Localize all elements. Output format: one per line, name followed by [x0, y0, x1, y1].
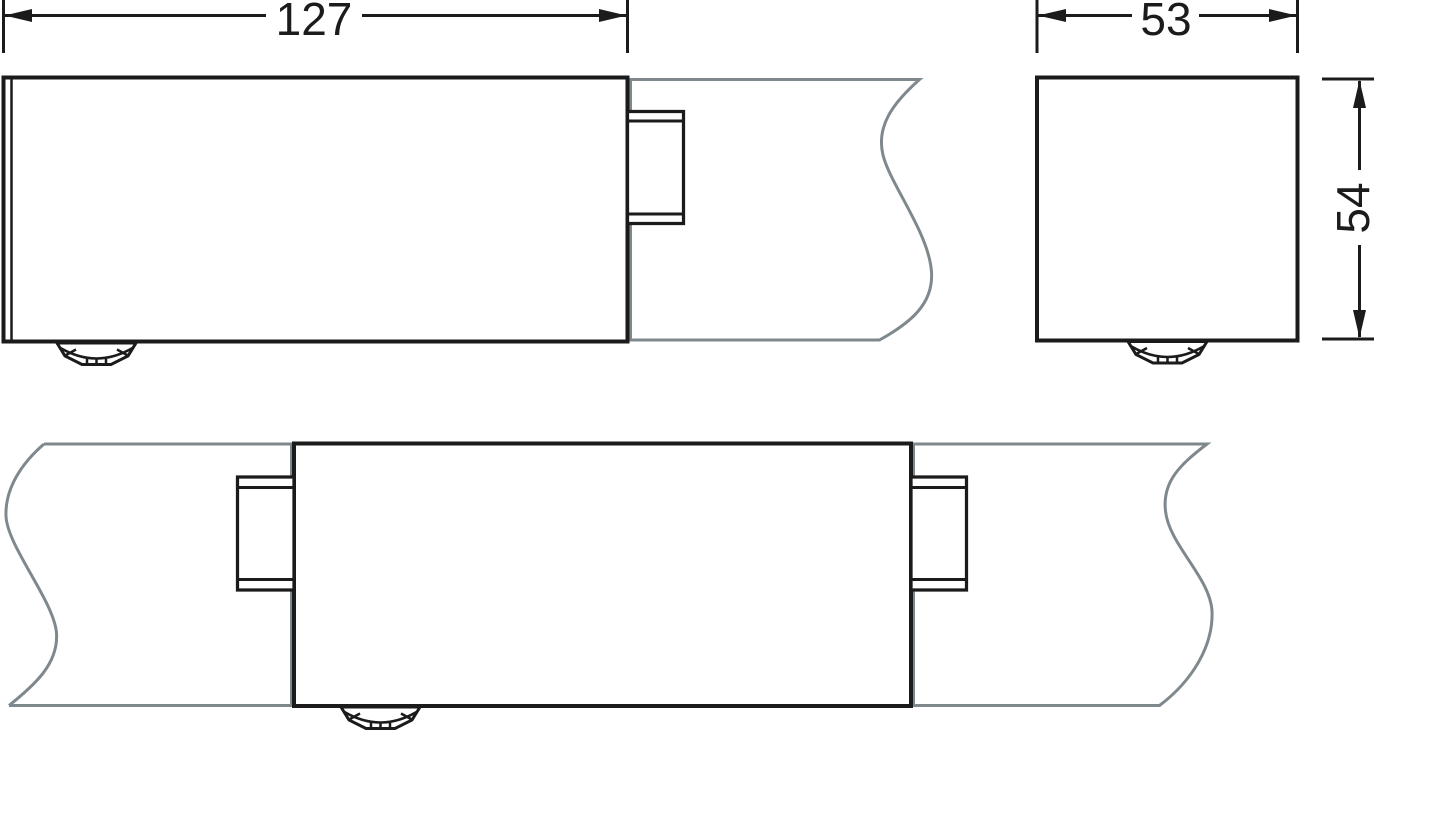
arrowhead-right	[599, 9, 627, 22]
arrowhead-left	[5, 9, 33, 22]
end-view: 53 54	[1037, 0, 1379, 363]
dimension-height-54: 54	[1322, 79, 1379, 339]
cap-body	[4, 78, 628, 342]
fixing-clip-right	[911, 477, 967, 590]
side-view: 127	[4, 0, 932, 365]
technical-drawing: 127 53 54	[0, 0, 1440, 825]
cap-end-body	[1037, 78, 1298, 341]
knurled-foot	[1128, 342, 1207, 364]
knurled-foot	[341, 707, 420, 729]
dimension-width-53: 53	[1037, 0, 1298, 53]
dimension-label-width: 53	[1140, 0, 1191, 45]
dimension-label-height: 54	[1327, 182, 1379, 233]
arrowhead-down	[1353, 310, 1366, 338]
drawing-canvas: 127 53 54	[0, 0, 1440, 825]
arrowhead-up	[1353, 80, 1366, 108]
joint-view	[6, 444, 1212, 729]
fixing-clip	[628, 112, 684, 224]
knurled-foot	[57, 343, 136, 365]
arrowhead-left	[1038, 9, 1066, 22]
fixing-clip-left	[238, 477, 295, 590]
arrowhead-right	[1269, 9, 1297, 22]
trunking-break-line	[6, 444, 57, 706]
connector-body	[294, 444, 911, 707]
dimension-label-width: 127	[276, 0, 353, 45]
dimension-width-127: 127	[4, 0, 628, 53]
